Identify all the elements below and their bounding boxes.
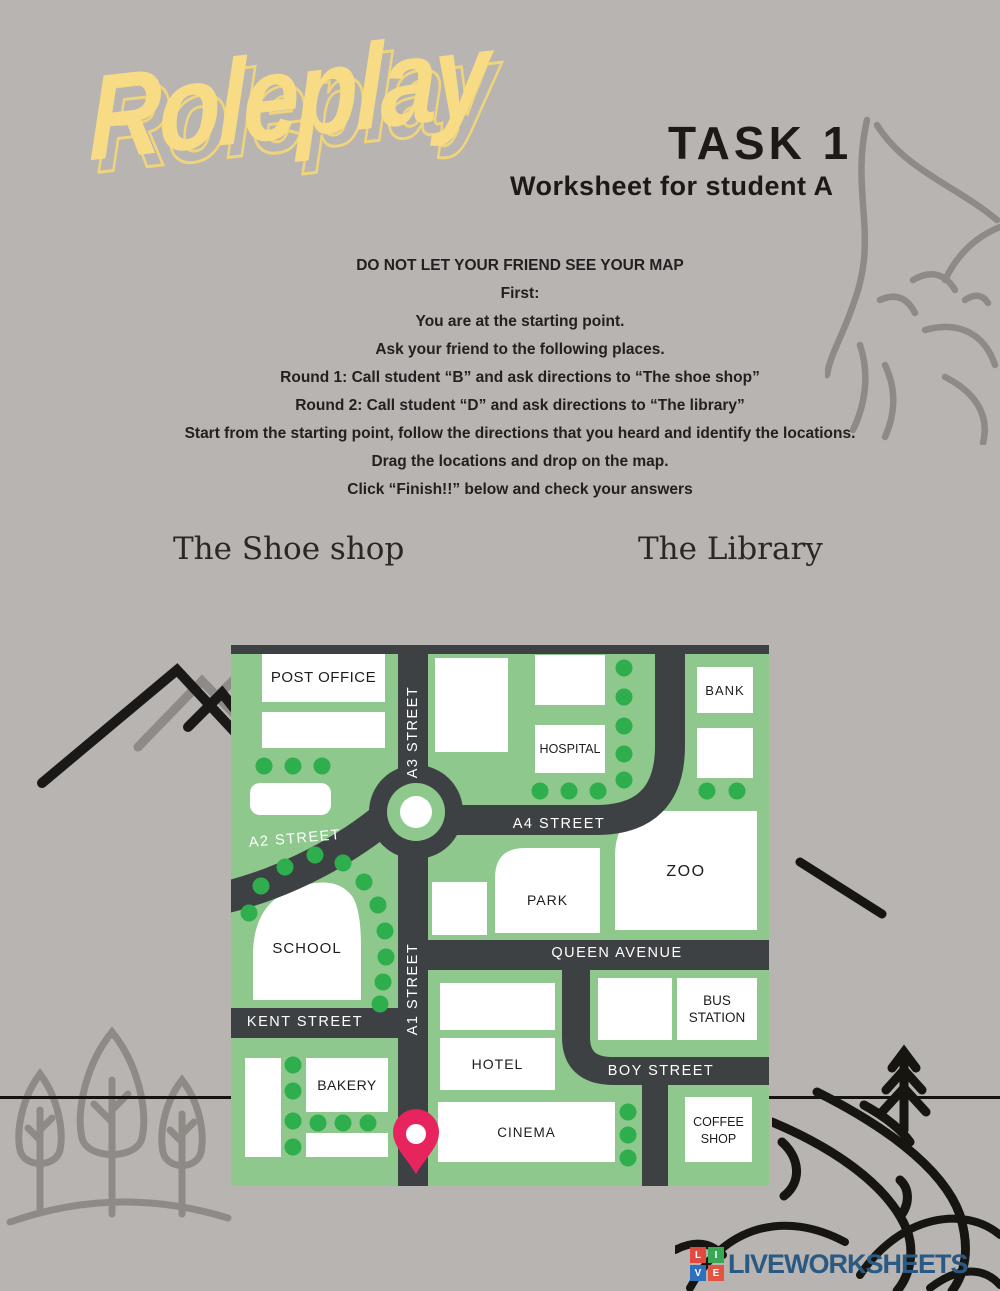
street-label-boy: BOY STREET bbox=[601, 1063, 721, 1079]
draggable-shoe-shop[interactable]: The Shoe shop bbox=[173, 531, 404, 567]
trees-decoration bbox=[2, 1022, 234, 1237]
place-label-post-office: POST OFFICE bbox=[262, 669, 385, 686]
street-label-kent: KENT STREET bbox=[245, 1014, 365, 1030]
liveworksheets-logo-icon: L I V E bbox=[690, 1247, 724, 1281]
logo-square-e: E bbox=[708, 1265, 724, 1281]
liveworksheets-brand-link[interactable]: L I V E LIVEWORKSHEETS bbox=[690, 1247, 968, 1281]
brand-name: LIVEWORKSHEETS bbox=[728, 1249, 968, 1280]
draggable-library[interactable]: The Library bbox=[638, 531, 823, 567]
place-label-bank: BANK bbox=[697, 682, 753, 699]
street-label-a4: A4 STREET bbox=[509, 816, 609, 832]
street-label-queen: QUEEN AVENUE bbox=[542, 945, 692, 961]
park-area bbox=[495, 848, 600, 933]
place-label-hospital: HOSPITAL bbox=[533, 741, 607, 758]
logo-square-v: V bbox=[690, 1265, 706, 1281]
place-label-coffee-shop: COFFEE SHOP bbox=[685, 1114, 752, 1148]
place-label-bakery: BAKERY bbox=[306, 1077, 388, 1094]
place-label-hotel: HOTEL bbox=[440, 1056, 555, 1073]
diagonal-line-decoration bbox=[795, 857, 887, 919]
place-label-cinema: CINEMA bbox=[438, 1124, 615, 1141]
mountains-decoration bbox=[30, 655, 265, 795]
city-map-drop-area[interactable]: A3 STREET A1 STREET A2 STREET A4 STREET … bbox=[231, 645, 769, 1186]
instruction-line: Click “Finish!!” below and check your an… bbox=[20, 476, 1000, 504]
worksheet-page: Roleplay Roleplay TASK 1 Worksheet for s… bbox=[0, 0, 1000, 1291]
place-label-bus-station: BUS STATION bbox=[677, 992, 757, 1026]
map-artwork bbox=[231, 645, 769, 1186]
place-label-park: PARK bbox=[495, 892, 600, 909]
logo-square-l: L bbox=[690, 1247, 706, 1263]
street-label-a3: A3 STREET bbox=[405, 682, 421, 782]
instruction-line: Drag the locations and drop on the map. bbox=[20, 448, 1000, 476]
place-label-zoo: ZOO bbox=[615, 863, 757, 880]
street-label-a1: A1 STREET bbox=[405, 939, 421, 1039]
logo-square-i: I bbox=[708, 1247, 724, 1263]
task-subtitle: Worksheet for student A bbox=[510, 171, 834, 202]
river-decoration bbox=[825, 45, 1000, 445]
place-label-school: SCHOOL bbox=[253, 940, 361, 957]
